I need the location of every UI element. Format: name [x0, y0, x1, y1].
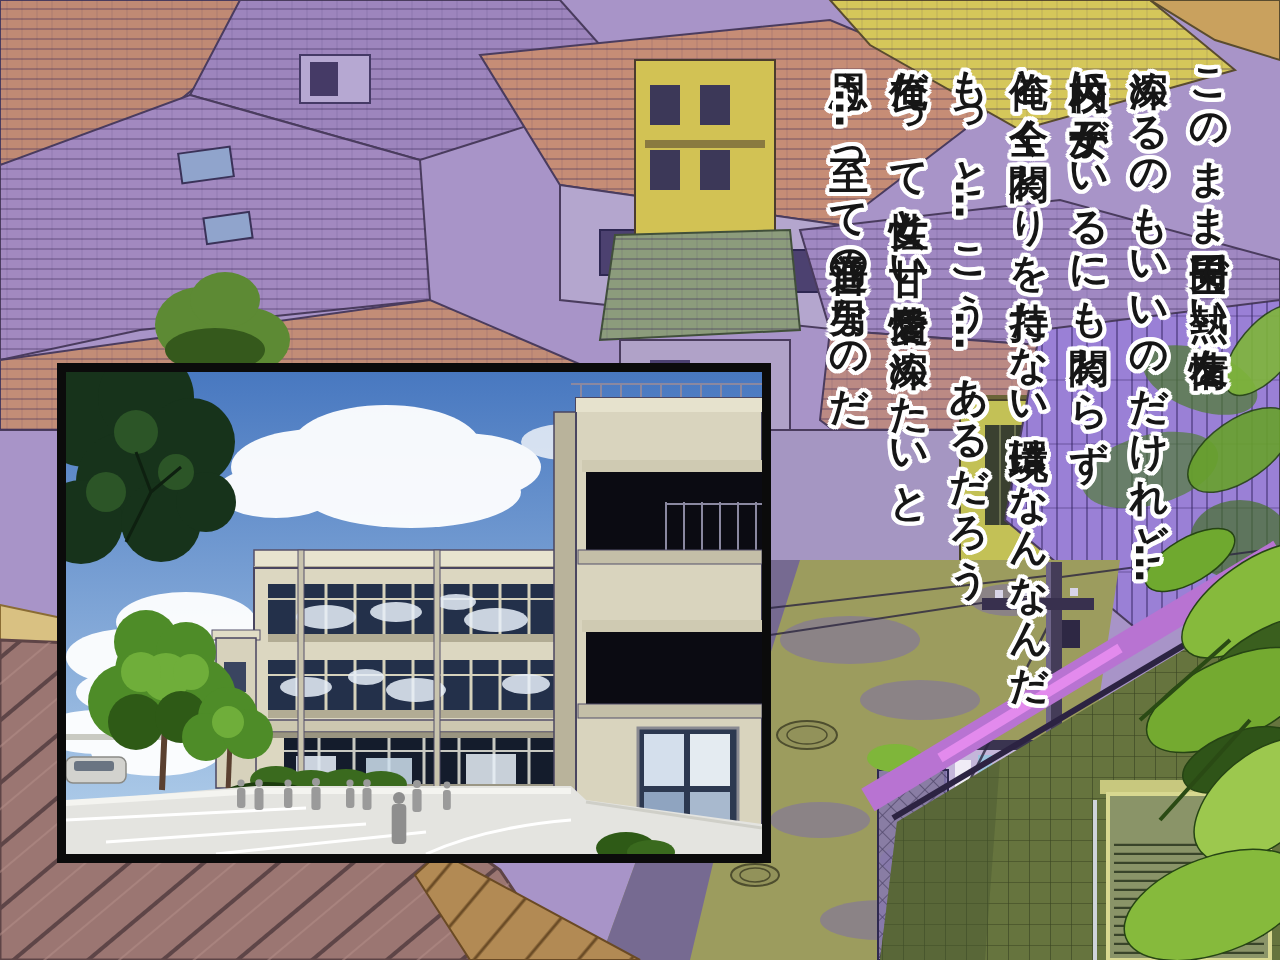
school-photo-panel	[57, 363, 771, 863]
school-main-building	[212, 550, 569, 790]
school-building-illustration	[66, 372, 762, 854]
comic-page: このまま男同士で熱い友情を 深めるのもいいのだけれど… 校内に女子がいるにも関わ…	[0, 0, 1280, 960]
school-right-wing	[554, 384, 762, 854]
parked-car	[66, 757, 126, 783]
